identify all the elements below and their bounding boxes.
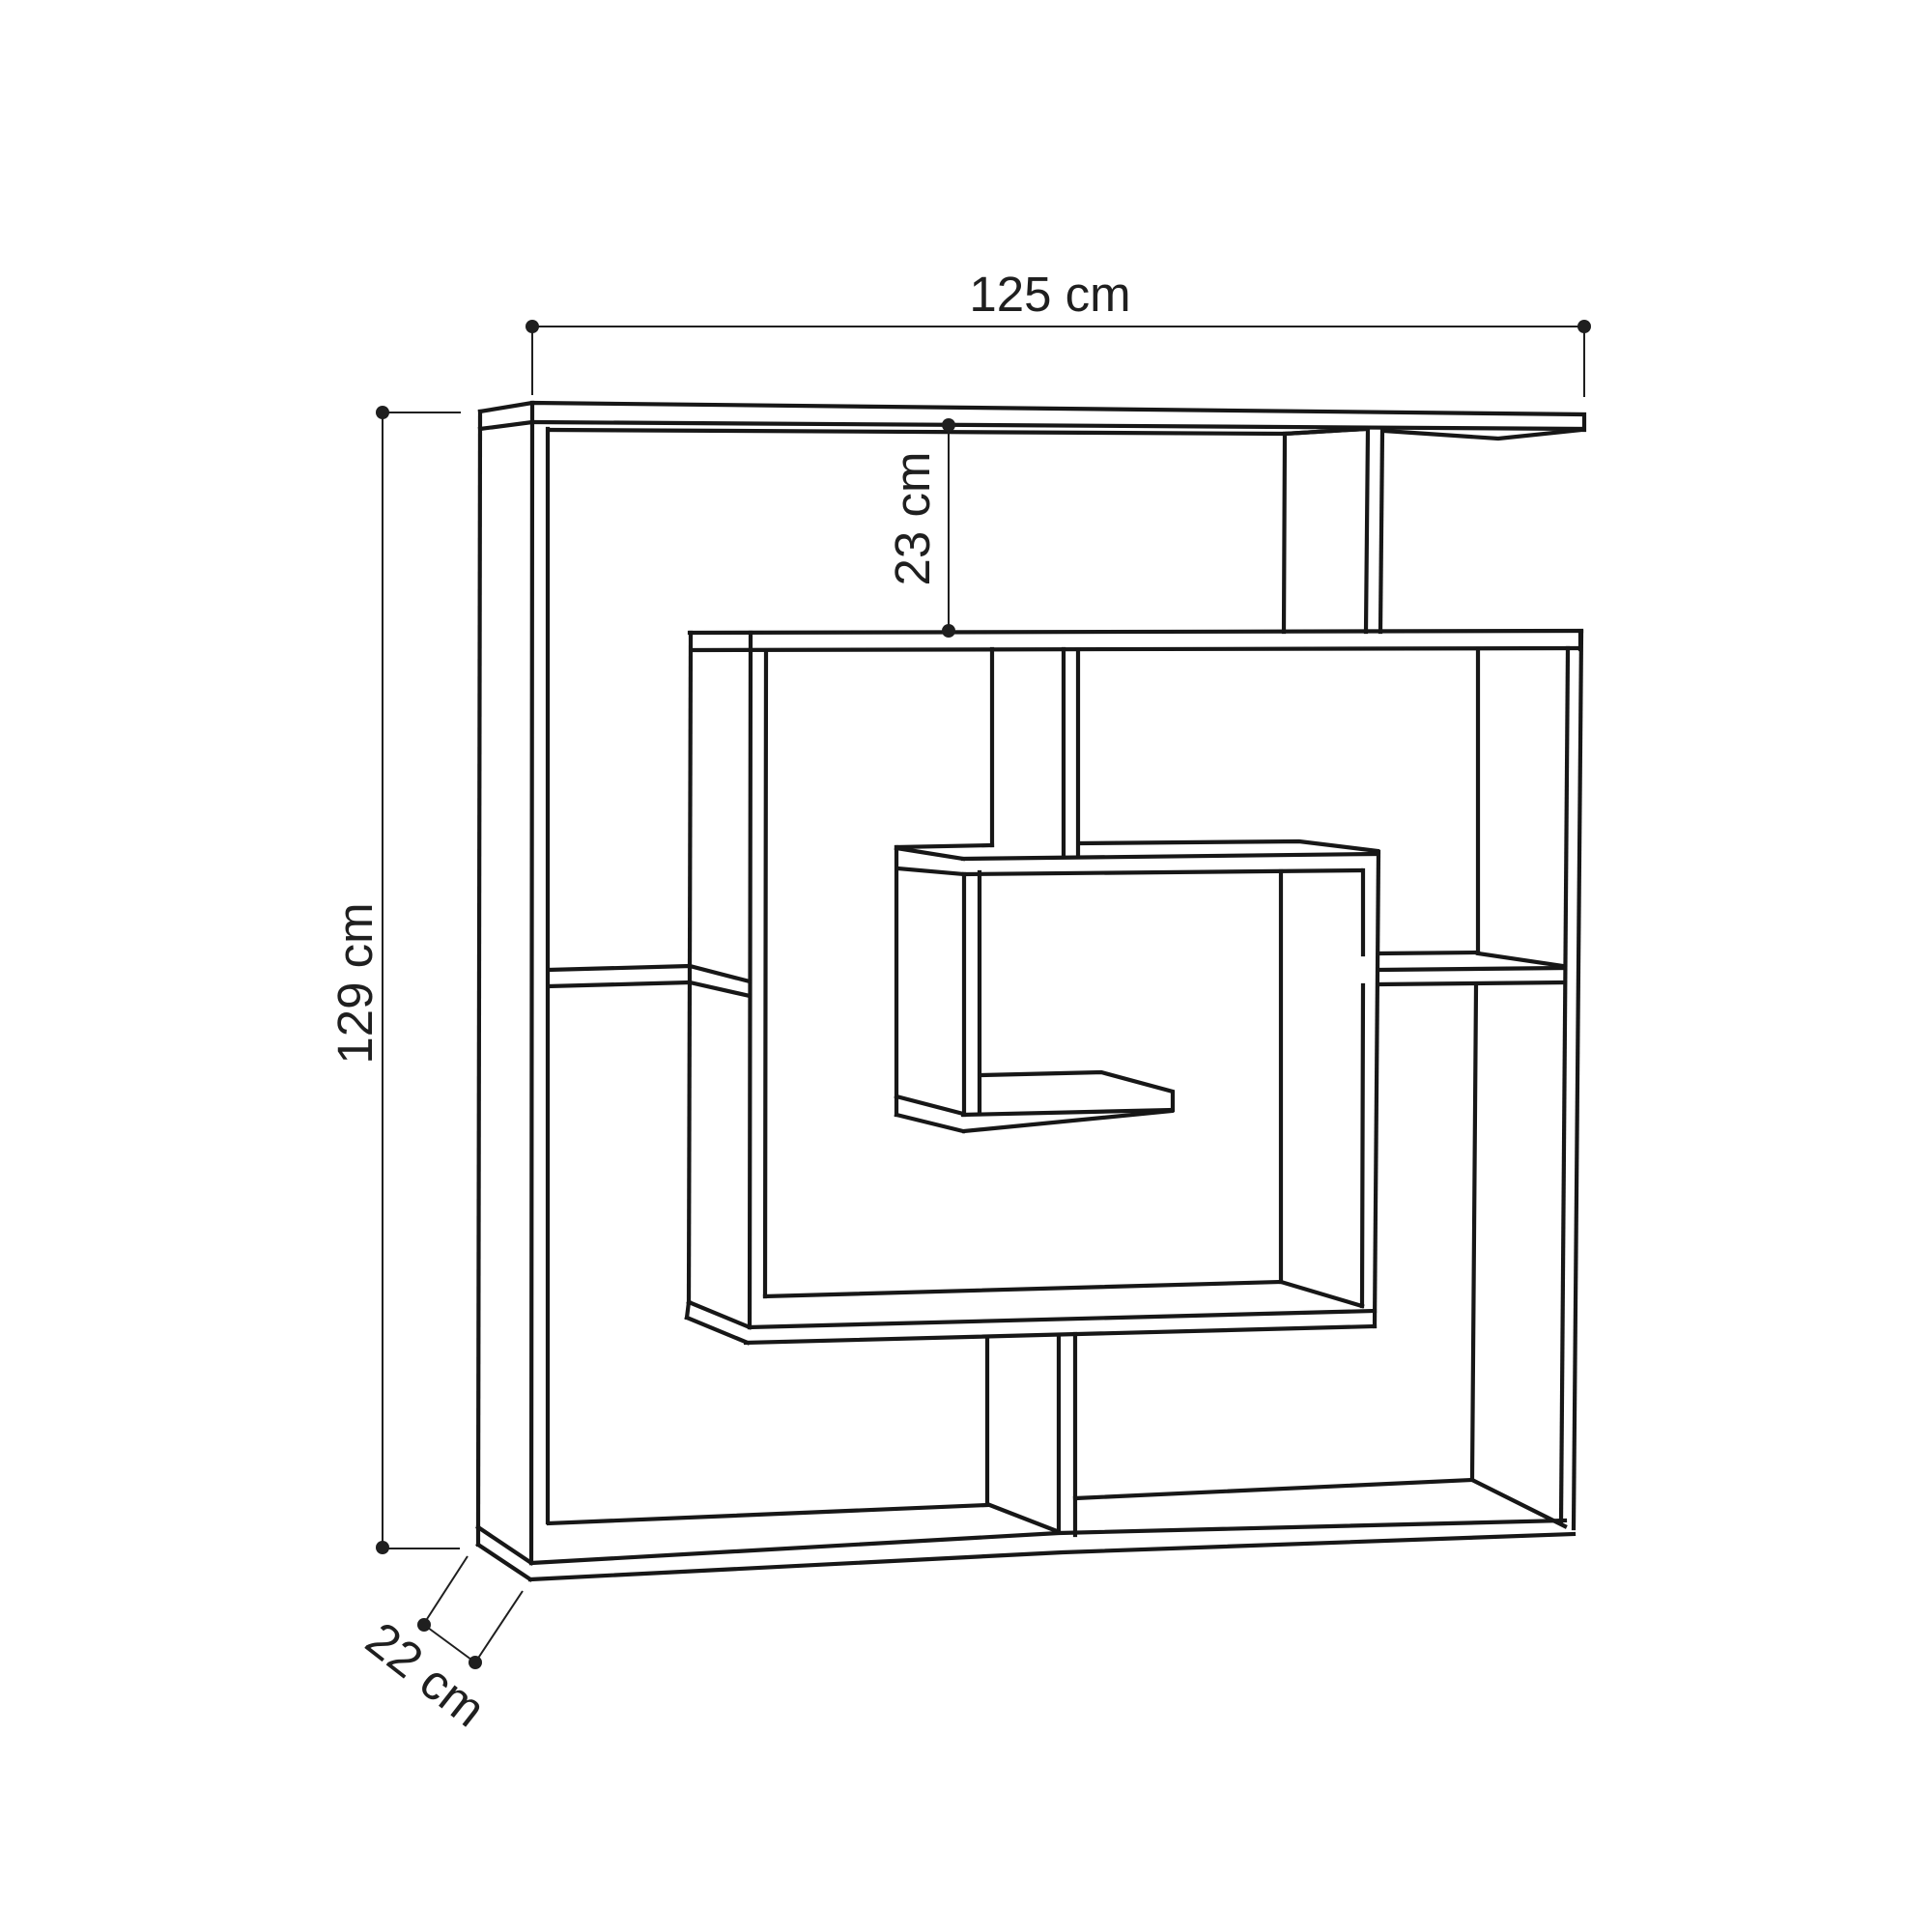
svg-text:125 cm: 125 cm: [969, 267, 1130, 322]
svg-text:23 cm: 23 cm: [885, 452, 940, 586]
svg-text:129 cm: 129 cm: [327, 902, 383, 1064]
